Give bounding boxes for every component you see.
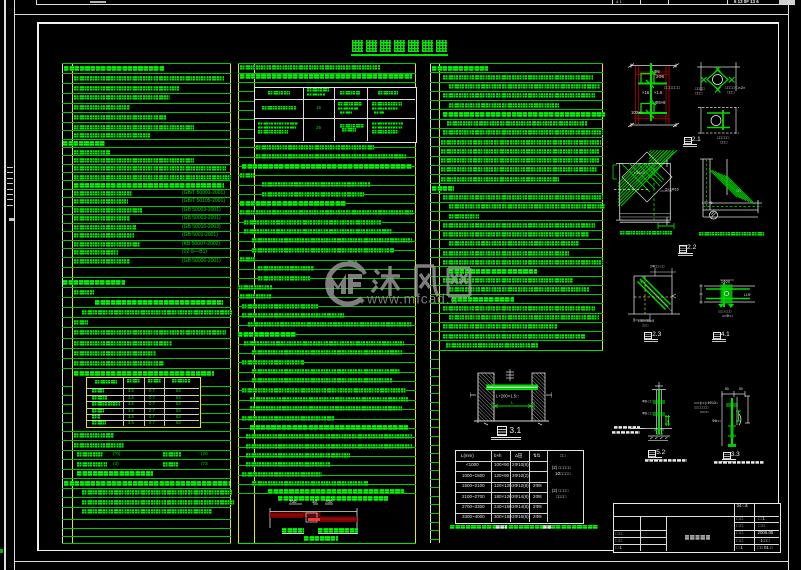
svg-text:L50×5: L50×5 [702,201,713,205]
svg-text:L50×50×5: L50×50×5 [638,319,654,323]
svg-text:2×1Φ16: 2×1Φ16 [665,188,679,192]
svg-text:100+□: 100+□ [631,110,643,115]
svg-text:□□□-□□□: □□□-□□□ [718,310,731,314]
svg-text:□: □ [667,419,669,423]
svg-text:Φ6·□□: Φ6·□□ [642,400,653,404]
svg-text:□□□□□□: □□□□□□ [664,85,680,90]
svg-text:×1.5: ×1.5 [654,90,663,95]
svg-text:□□: □□ [736,189,741,193]
svg-text:L1Φ: L1Φ [744,293,751,297]
svg-text:×16: ×16 [642,90,650,95]
svg-text:□□Φ□□: □□Φ□□ [722,314,733,318]
svg-text:Φ6□□: Φ6□□ [712,419,721,423]
svg-text:L+200×1.5□: L+200×1.5□ [496,394,519,399]
svg-text:□□□: □□□ [720,140,728,145]
svg-text:□□□: □□□ [642,324,648,328]
svg-text:□□□: □□□ [727,90,735,95]
svg-text:□□□(□□) 4Φ12□: □□□(□□) 4Φ12□ [694,401,718,405]
svg-text:700: 700 [325,499,333,504]
svg-text:Φ6×6: Φ6×6 [655,100,666,105]
svg-text:50: 50 [725,387,729,391]
svg-text:±0: ±0 [312,499,317,504]
svg-text:□□□□: □□□□ [700,410,708,414]
svg-text:□□□: □□□ [695,91,703,96]
svg-text:www.mfcad.c: www.mfcad.c [366,291,458,307]
svg-text:700: 700 [289,499,297,504]
svg-text:2Φ6: 2Φ6 [656,74,665,79]
svg-text:50: 50 [739,387,743,391]
svg-text:2Φ□□-□□: 2Φ□□-□□ [650,265,665,269]
svg-text:□□□□□□□: □□□□□□□ [694,406,708,410]
svg-text:1Φ20: 1Φ20 [721,280,730,284]
svg-text:Φ6·□□: Φ6·□□ [642,412,653,416]
svg-text:L: L [511,400,514,405]
svg-text:L50×5: L50×5 [634,171,645,175]
